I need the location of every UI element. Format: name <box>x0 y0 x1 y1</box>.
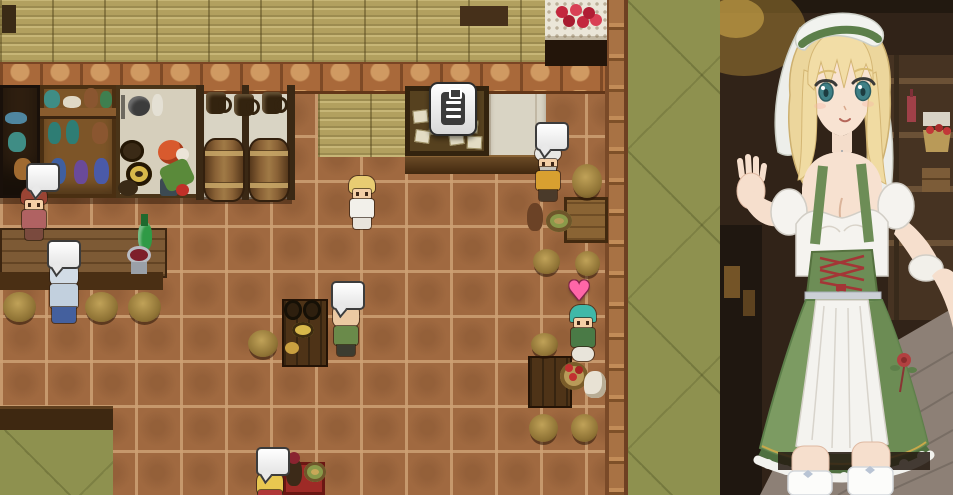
stool <box>248 330 278 357</box>
wall-beam <box>460 6 508 26</box>
npc-turbaned-merchant[interactable] <box>532 146 564 206</box>
stool <box>572 164 602 198</box>
stool <box>571 414 598 442</box>
stool <box>85 292 118 322</box>
npc-green-haired-adventurer[interactable] <box>567 305 599 363</box>
bench-edge <box>0 406 113 430</box>
storage-barrel <box>248 138 290 202</box>
rose-table <box>545 0 607 40</box>
shelf-board <box>40 108 116 119</box>
window-light <box>724 266 740 298</box>
heart-icon: ♥ <box>567 280 591 304</box>
speech-bubble-icon <box>256 447 290 476</box>
stool <box>128 292 161 322</box>
stool <box>575 251 600 276</box>
clipboard-icon[interactable] <box>429 82 477 136</box>
brick-pillar <box>605 0 628 495</box>
stool <box>533 249 560 274</box>
game-viewport[interactable]: ♥ <box>0 0 720 495</box>
speech-bubble-icon <box>47 240 81 269</box>
stool <box>531 333 558 356</box>
storage-barrel <box>203 138 245 202</box>
board-ledge <box>405 155 546 174</box>
straw-wall-top <box>0 0 607 64</box>
npc-player-barmaid[interactable] <box>346 176 378 234</box>
hanging-mug <box>206 92 226 114</box>
straw-wall-mid <box>318 89 406 157</box>
alcove-shadow <box>545 38 607 66</box>
bar-counter-front <box>0 272 163 290</box>
stool <box>529 414 558 442</box>
hanging-mug <box>234 94 254 116</box>
window-light <box>743 290 755 316</box>
green-floor-right <box>627 0 720 495</box>
wall-plaque <box>2 5 16 33</box>
green-floor-bottom-left <box>0 425 113 495</box>
dark-furniture <box>720 225 762 495</box>
screenshot-stage: ♥ <box>0 0 953 495</box>
barmaid-portrait <box>720 0 953 495</box>
speech-bubble-icon <box>26 163 60 192</box>
stool <box>3 292 36 322</box>
speech-bubble-icon <box>535 122 569 151</box>
roses <box>556 6 568 18</box>
speech-bubble-icon <box>331 281 365 310</box>
hanging-mug <box>262 92 282 114</box>
